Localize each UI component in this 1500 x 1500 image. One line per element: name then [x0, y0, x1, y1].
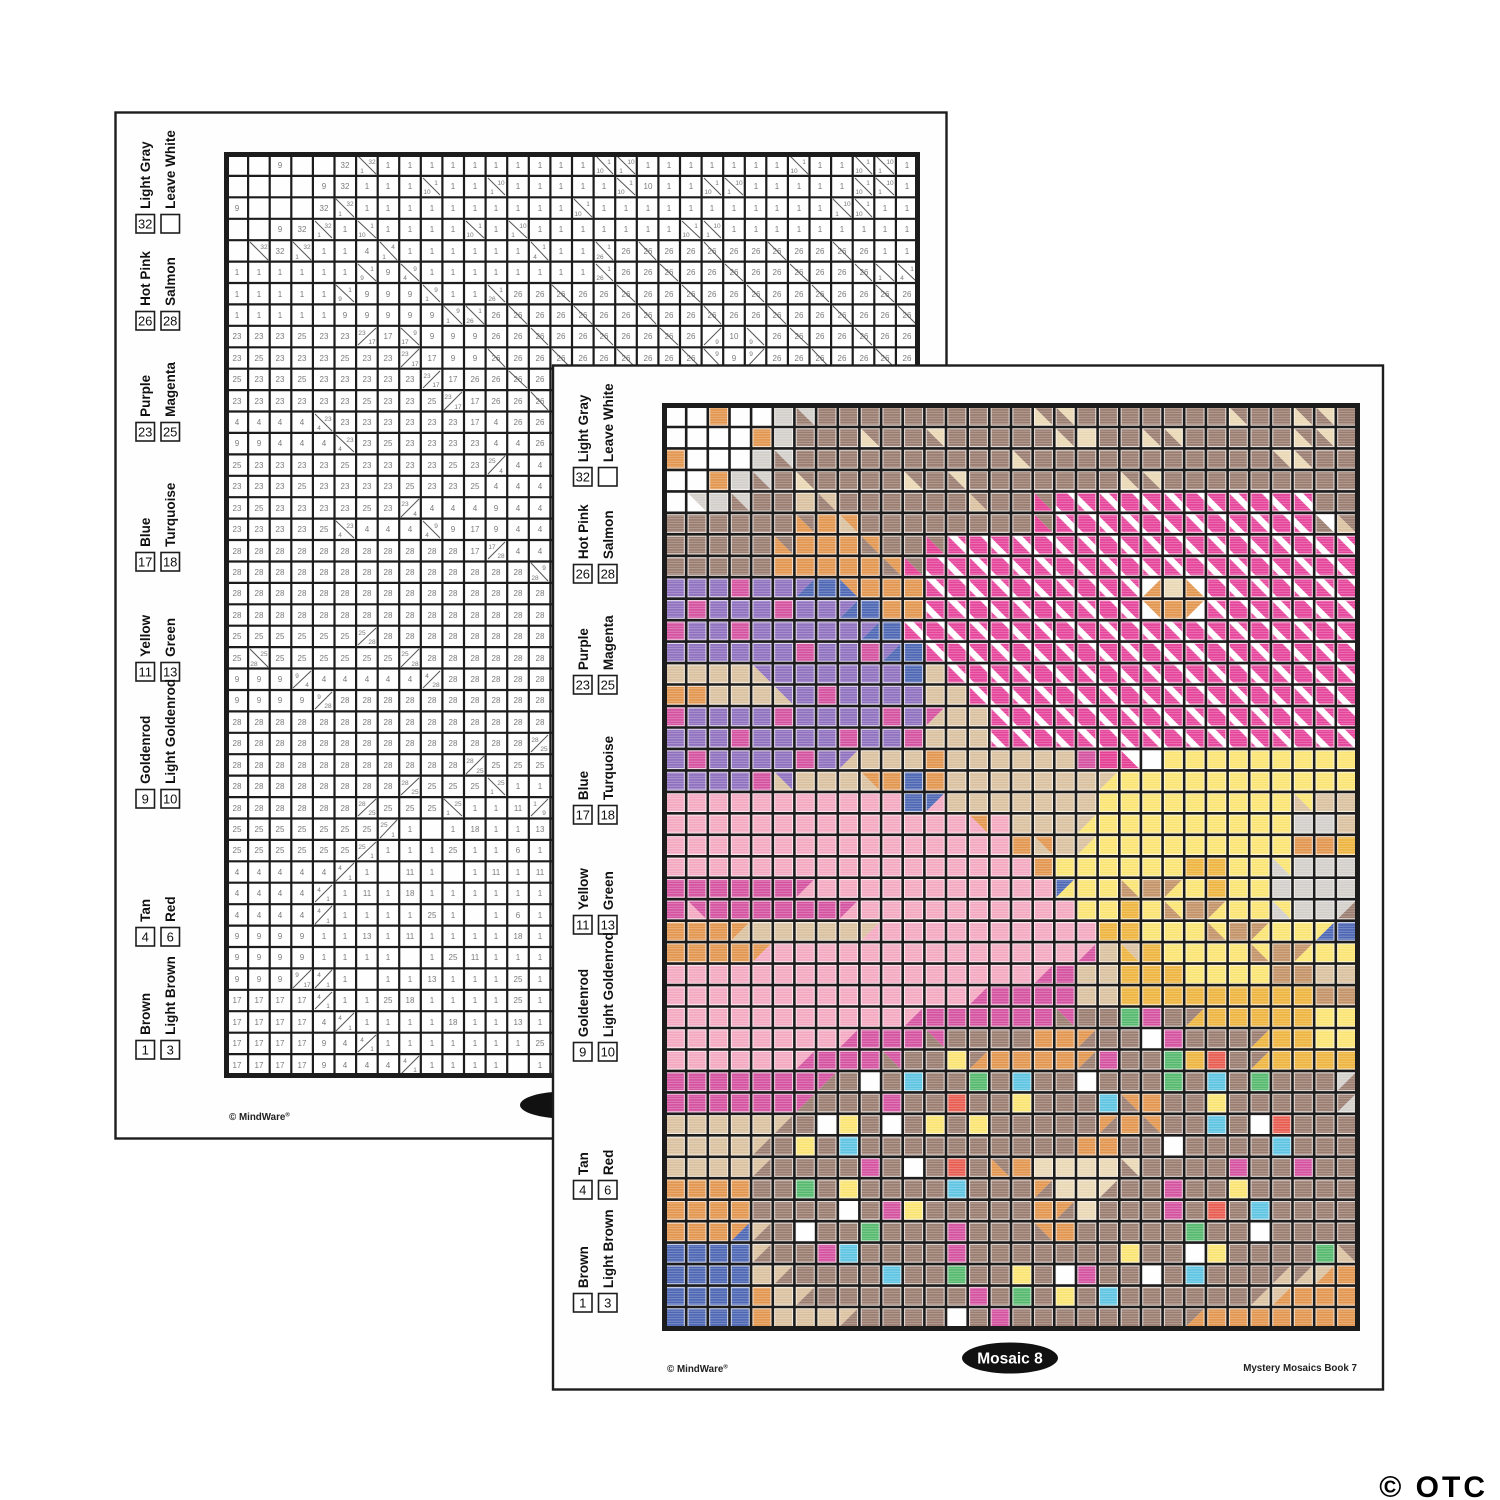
svg-text:1: 1: [694, 223, 698, 230]
svg-text:1: 1: [727, 189, 731, 196]
svg-text:1: 1: [542, 244, 546, 251]
svg-text:4: 4: [317, 972, 321, 979]
svg-text:Purple: Purple: [576, 628, 591, 671]
svg-text:25: 25: [401, 651, 409, 658]
svg-text:9: 9: [413, 330, 417, 337]
svg-text:4: 4: [900, 275, 904, 282]
svg-text:25: 25: [163, 425, 177, 440]
svg-text:13: 13: [163, 665, 177, 680]
svg-text:17: 17: [411, 361, 419, 368]
svg-text:17: 17: [576, 808, 590, 823]
svg-text:4: 4: [338, 1015, 342, 1022]
svg-text:Leave White: Leave White: [601, 383, 616, 462]
svg-text:4: 4: [338, 446, 342, 453]
svg-text:Green: Green: [601, 871, 616, 910]
svg-text:9: 9: [295, 972, 299, 979]
svg-text:© MindWare®: © MindWare®: [229, 1112, 290, 1124]
svg-text:25: 25: [358, 630, 366, 637]
svg-text:1: 1: [607, 244, 611, 251]
svg-text:26: 26: [596, 254, 604, 261]
svg-text:1: 1: [348, 287, 352, 294]
svg-text:1: 1: [434, 180, 438, 187]
svg-text:Yellow: Yellow: [576, 868, 591, 911]
svg-text:32: 32: [260, 244, 268, 251]
svg-text:1: 1: [607, 159, 611, 166]
svg-text:28: 28: [531, 575, 539, 582]
svg-text:10: 10: [735, 180, 743, 187]
svg-text:25: 25: [497, 780, 505, 787]
svg-text:23: 23: [401, 351, 409, 358]
svg-text:1: 1: [629, 180, 633, 187]
svg-text:Hot Pink: Hot Pink: [138, 251, 153, 306]
svg-text:4: 4: [317, 908, 321, 915]
svg-text:10: 10: [886, 180, 894, 187]
svg-text:1: 1: [490, 789, 494, 796]
svg-text:1: 1: [478, 223, 482, 230]
svg-text:1: 1: [446, 810, 450, 817]
svg-text:23: 23: [576, 678, 590, 693]
svg-text:23: 23: [346, 523, 354, 530]
svg-text:17: 17: [138, 555, 152, 570]
svg-text:1: 1: [715, 180, 719, 187]
svg-text:25: 25: [368, 810, 376, 817]
svg-text:4: 4: [360, 1037, 364, 1044]
svg-text:1: 1: [619, 168, 623, 175]
svg-text:Goldenrod: Goldenrod: [576, 969, 591, 1037]
svg-text:9: 9: [413, 266, 417, 273]
svg-text:28: 28: [497, 553, 505, 560]
svg-text:Light Goldenrod: Light Goldenrod: [163, 679, 178, 784]
svg-text:1: 1: [490, 189, 494, 196]
svg-text:1: 1: [533, 801, 537, 808]
svg-text:23: 23: [324, 416, 332, 423]
svg-text:1: 1: [326, 982, 330, 989]
svg-text:17: 17: [368, 339, 376, 346]
svg-text:23: 23: [444, 394, 452, 401]
svg-text:28: 28: [401, 780, 409, 787]
svg-text:Light Brown: Light Brown: [163, 956, 178, 1035]
svg-text:10: 10: [358, 232, 366, 239]
svg-text:1: 1: [413, 1067, 417, 1074]
svg-text:10: 10: [466, 232, 474, 239]
svg-text:28: 28: [368, 639, 376, 646]
svg-text:1: 1: [866, 159, 870, 166]
svg-text:4: 4: [391, 244, 395, 251]
svg-text:17: 17: [454, 404, 462, 411]
svg-text:3: 3: [167, 1043, 174, 1058]
svg-text:9: 9: [456, 308, 460, 315]
svg-text:Salmon: Salmon: [601, 510, 616, 559]
svg-text:26: 26: [576, 567, 590, 582]
svg-text:Leave White: Leave White: [163, 130, 178, 209]
svg-text:4: 4: [413, 511, 417, 518]
svg-text:Light Goldenrod: Light Goldenrod: [601, 932, 616, 1037]
svg-text:11: 11: [576, 918, 590, 933]
svg-text:9: 9: [295, 673, 299, 680]
svg-text:10: 10: [596, 168, 604, 175]
svg-text:10: 10: [855, 211, 863, 218]
svg-text:1: 1: [370, 1046, 374, 1053]
svg-text:23: 23: [401, 501, 409, 508]
svg-text:3: 3: [604, 1296, 611, 1311]
svg-text:Hot Pink: Hot Pink: [576, 504, 591, 559]
svg-text:1: 1: [579, 1296, 586, 1311]
svg-text:1: 1: [382, 254, 386, 261]
svg-text:9: 9: [715, 339, 719, 346]
svg-text:Mystery Mosaics Book 7: Mystery Mosaics Book 7: [1243, 1363, 1357, 1374]
svg-text:Green: Green: [163, 618, 178, 657]
svg-text:9: 9: [715, 351, 719, 358]
svg-text:17: 17: [488, 544, 496, 551]
svg-text:1: 1: [878, 168, 882, 175]
svg-text:25: 25: [540, 746, 548, 753]
svg-text:25: 25: [601, 678, 615, 693]
svg-text:1: 1: [511, 232, 515, 239]
svg-text:18: 18: [163, 555, 177, 570]
svg-text:28: 28: [432, 682, 440, 689]
svg-text:28: 28: [163, 314, 177, 329]
svg-text:1: 1: [499, 287, 503, 294]
svg-text:32: 32: [303, 244, 311, 251]
svg-text:Purple: Purple: [138, 374, 153, 417]
svg-text:9: 9: [434, 287, 438, 294]
svg-text:4: 4: [533, 254, 537, 261]
svg-text:13: 13: [601, 918, 615, 933]
svg-text:9: 9: [749, 339, 753, 346]
svg-text:1: 1: [370, 853, 374, 860]
svg-text:10: 10: [704, 189, 712, 196]
svg-text:28: 28: [411, 661, 419, 668]
svg-text:26: 26: [466, 318, 474, 325]
svg-text:1: 1: [835, 211, 839, 218]
svg-text:Magenta: Magenta: [163, 362, 178, 417]
svg-text:Light Brown: Light Brown: [601, 1209, 616, 1288]
svg-text:4: 4: [317, 887, 321, 894]
svg-text:1: 1: [295, 254, 299, 261]
svg-text:23: 23: [138, 425, 152, 440]
svg-text:Brown: Brown: [576, 1246, 591, 1288]
svg-text:1: 1: [607, 266, 611, 273]
svg-text:11: 11: [138, 665, 152, 680]
svg-text:Brown: Brown: [138, 993, 153, 1035]
svg-text:9: 9: [542, 565, 546, 572]
svg-text:28: 28: [531, 737, 539, 744]
svg-text:1: 1: [706, 232, 710, 239]
svg-text:23: 23: [358, 330, 366, 337]
svg-text:1: 1: [317, 232, 321, 239]
svg-text:10: 10: [855, 189, 863, 196]
svg-text:Red: Red: [601, 1150, 616, 1176]
svg-text:9: 9: [434, 523, 438, 530]
svg-text:25: 25: [380, 822, 388, 829]
svg-text:25: 25: [488, 458, 496, 465]
svg-text:10: 10: [627, 159, 635, 166]
svg-text:10: 10: [713, 223, 721, 230]
svg-text:23: 23: [423, 373, 431, 380]
svg-text:9: 9: [749, 351, 753, 358]
svg-text:10: 10: [519, 223, 527, 230]
svg-text:1: 1: [866, 201, 870, 208]
svg-text:Blue: Blue: [138, 517, 153, 547]
svg-text:4: 4: [425, 532, 429, 539]
svg-text:10: 10: [497, 180, 505, 187]
svg-text:1: 1: [326, 1003, 330, 1010]
svg-text:17: 17: [401, 339, 409, 346]
svg-text:4: 4: [338, 865, 342, 872]
svg-text:Tan: Tan: [576, 1152, 591, 1175]
svg-text:25: 25: [476, 768, 484, 775]
svg-text:10: 10: [682, 232, 690, 239]
svg-text:Turquoise: Turquoise: [163, 482, 178, 547]
svg-text:1: 1: [910, 266, 914, 273]
svg-text:26: 26: [596, 275, 604, 282]
svg-text:25: 25: [454, 801, 462, 808]
svg-text:23: 23: [346, 437, 354, 444]
svg-text:10: 10: [855, 168, 863, 175]
svg-text:© MindWare®: © MindWare®: [667, 1364, 728, 1376]
svg-text:1: 1: [142, 1043, 149, 1058]
svg-text:1: 1: [878, 189, 882, 196]
svg-text:32: 32: [576, 470, 590, 485]
svg-text:1: 1: [326, 896, 330, 903]
svg-text:Goldenrod: Goldenrod: [138, 716, 153, 784]
svg-text:28: 28: [358, 801, 366, 808]
svg-text:Turquoise: Turquoise: [601, 735, 616, 800]
svg-text:17: 17: [303, 982, 311, 989]
svg-text:32: 32: [368, 159, 376, 166]
svg-text:6: 6: [167, 930, 174, 945]
svg-text:32: 32: [138, 217, 152, 232]
svg-text:6: 6: [604, 1183, 611, 1198]
svg-text:4: 4: [425, 673, 429, 680]
svg-text:1: 1: [338, 211, 342, 218]
svg-text:25: 25: [411, 789, 419, 796]
svg-text:10: 10: [790, 168, 798, 175]
svg-text:25: 25: [260, 651, 268, 658]
svg-text:18: 18: [601, 808, 615, 823]
svg-text:9: 9: [317, 694, 321, 701]
svg-text:1: 1: [391, 832, 395, 839]
svg-text:Salmon: Salmon: [163, 257, 178, 306]
svg-text:4: 4: [142, 930, 149, 945]
svg-text:28: 28: [250, 661, 258, 668]
svg-text:4: 4: [317, 994, 321, 1001]
svg-text:17: 17: [432, 382, 440, 389]
svg-text:9: 9: [142, 792, 149, 807]
svg-text:1: 1: [370, 223, 374, 230]
svg-text:4: 4: [338, 532, 342, 539]
svg-text:10: 10: [601, 1045, 615, 1060]
svg-text:1: 1: [370, 266, 374, 273]
svg-text:Mosaic 8: Mosaic 8: [977, 1351, 1043, 1368]
svg-text:32: 32: [324, 223, 332, 230]
svg-text:4: 4: [403, 1058, 407, 1065]
svg-text:4: 4: [499, 468, 503, 475]
svg-text:28: 28: [324, 703, 332, 710]
svg-text:4: 4: [305, 682, 309, 689]
svg-text:4: 4: [579, 1183, 586, 1198]
svg-text:Yellow: Yellow: [138, 614, 153, 657]
svg-text:28: 28: [466, 758, 474, 765]
svg-text:4: 4: [403, 275, 407, 282]
svg-text:1: 1: [446, 318, 450, 325]
svg-text:Blue: Blue: [576, 770, 591, 800]
svg-text:9: 9: [542, 810, 546, 817]
svg-text:10: 10: [574, 211, 582, 218]
svg-text:Tan: Tan: [138, 899, 153, 922]
svg-text:1: 1: [326, 918, 330, 925]
svg-text:Magenta: Magenta: [601, 615, 616, 670]
svg-text:© OTC: © OTC: [1379, 1471, 1488, 1500]
svg-text:9: 9: [579, 1045, 586, 1060]
svg-text:25: 25: [358, 844, 366, 851]
svg-text:26: 26: [138, 314, 152, 329]
svg-text:9: 9: [360, 275, 364, 282]
svg-text:4: 4: [317, 425, 321, 432]
svg-text:32: 32: [346, 201, 354, 208]
svg-text:1: 1: [478, 308, 482, 315]
svg-text:1: 1: [348, 875, 352, 882]
svg-text:Light Gray: Light Gray: [138, 141, 153, 209]
svg-text:1: 1: [802, 159, 806, 166]
svg-text:1: 1: [360, 168, 364, 175]
svg-text:10: 10: [423, 189, 431, 196]
svg-text:1: 1: [878, 275, 882, 282]
svg-text:10: 10: [163, 792, 177, 807]
svg-text:10: 10: [617, 189, 625, 196]
svg-text:1: 1: [348, 1025, 352, 1032]
svg-text:10: 10: [886, 159, 894, 166]
svg-text:28: 28: [601, 567, 615, 582]
svg-text:1: 1: [425, 296, 429, 303]
svg-text:10: 10: [843, 201, 851, 208]
svg-text:26: 26: [488, 296, 496, 303]
svg-text:Red: Red: [163, 896, 178, 922]
svg-text:1: 1: [866, 180, 870, 187]
svg-text:Light Gray: Light Gray: [576, 394, 591, 462]
svg-text:9: 9: [338, 296, 342, 303]
svg-text:1: 1: [586, 201, 590, 208]
